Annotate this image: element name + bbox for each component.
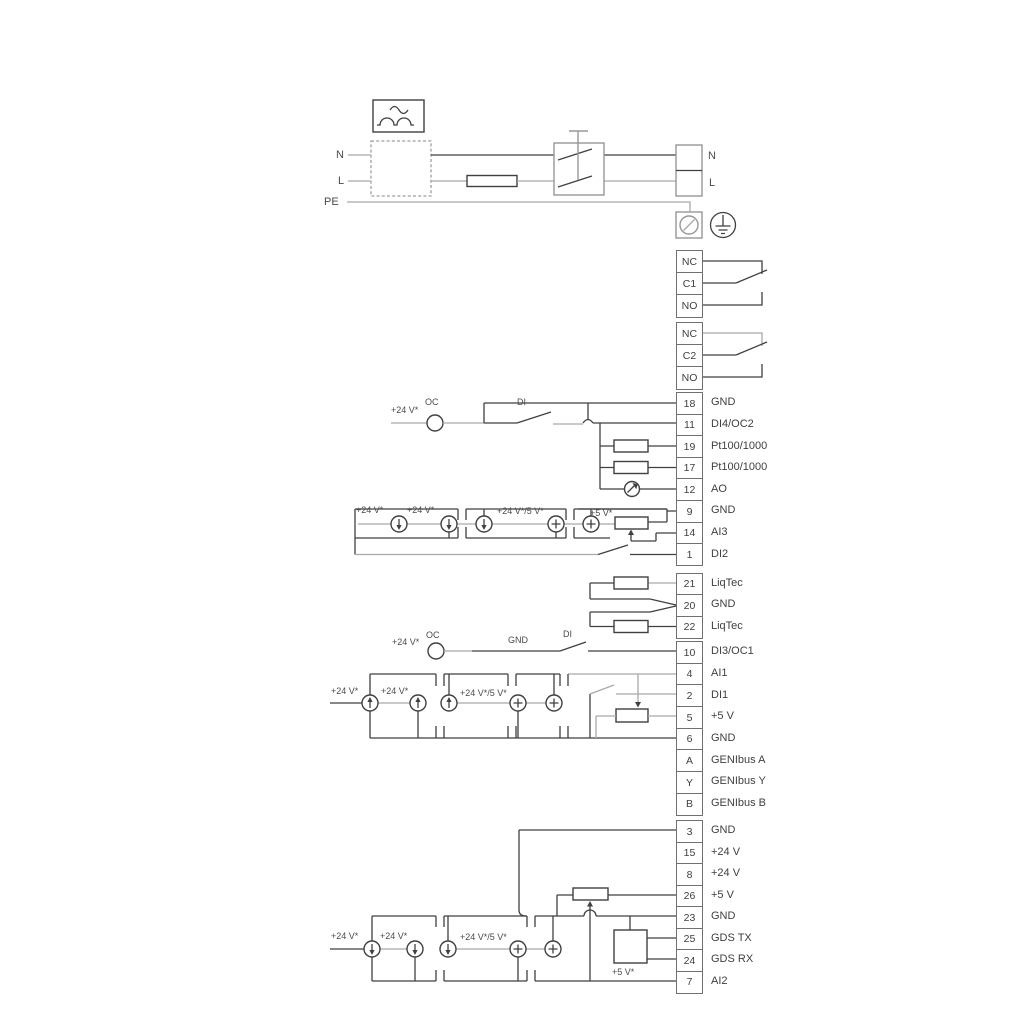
terminal-cell-B: B xyxy=(676,793,703,816)
terminal-cell-18: 18 xyxy=(676,392,703,415)
terminal-cell-9: 9 xyxy=(676,500,703,523)
terminal-cell-17: 17 xyxy=(676,457,703,480)
resistor-icon xyxy=(614,462,648,474)
terminal-cell-5: 5 xyxy=(676,706,703,729)
wiring-diagram: N L PE N L NCC1NONCC2NO18GND11DI4/OC219P… xyxy=(0,0,1024,1024)
wire-label: +5 V* xyxy=(612,967,634,977)
terminal-label-23: GND xyxy=(711,910,735,922)
terminal-cell-4: 4 xyxy=(676,663,703,686)
terminal-label-20: GND xyxy=(711,598,735,610)
terminal-label-3: GND xyxy=(711,824,735,836)
terminal-cell-1: 1 xyxy=(676,543,703,566)
current-source-up-icon xyxy=(410,695,426,711)
di1-switch-blade xyxy=(590,685,614,694)
liqtec-section xyxy=(590,577,676,633)
di3-oc1-section xyxy=(428,642,676,659)
voltage-source-icon xyxy=(546,695,562,711)
wiper-arrow-icon xyxy=(635,702,641,708)
terminal-cell-12: 12 xyxy=(676,478,703,501)
wire-label: +24 V* xyxy=(407,505,434,515)
current-source-down-icon xyxy=(476,516,492,532)
wire-label: +24 V*/5 V* xyxy=(497,506,544,516)
potentiometer-icon xyxy=(616,709,648,722)
port-label-n-right: N xyxy=(708,150,716,162)
terminal-label-9: GND xyxy=(711,504,735,516)
relay-2-blade xyxy=(736,342,767,355)
current-source-up-icon xyxy=(441,695,457,711)
voltage-source-icon xyxy=(510,695,526,711)
potentiometer-icon xyxy=(573,888,608,900)
terminal-cell-19: 19 xyxy=(676,435,703,458)
port-label-pe: PE xyxy=(324,196,339,208)
terminal-label-25: GDS TX xyxy=(711,932,752,944)
terminal-cell-21: 21 xyxy=(676,573,703,596)
terminal-label-7: AI2 xyxy=(711,975,728,987)
wire-label: OC xyxy=(425,397,439,407)
wire-label: DI xyxy=(563,629,572,639)
wire-label: +24 V*/5 V* xyxy=(460,688,507,698)
wire-hop xyxy=(583,420,593,424)
terminal-label-19: Pt100/1000 xyxy=(711,440,767,452)
rectifier-box-icon xyxy=(373,100,424,132)
main-switch-box xyxy=(554,143,604,195)
relay-cell-NC: NC xyxy=(676,322,703,346)
terminal-cell-15: 15 xyxy=(676,842,703,865)
di2-switch-blade xyxy=(598,545,628,555)
terminal-cell-A: A xyxy=(676,749,703,772)
di3-switch-blade xyxy=(560,642,586,651)
supply-dashed-box xyxy=(371,141,431,196)
terminal-label-5: +5 V xyxy=(711,710,734,722)
terminal-cell-25: 25 xyxy=(676,928,703,951)
wire-label: GND xyxy=(508,635,528,645)
ai1-di1-section xyxy=(330,674,676,738)
relay-cell-NC: NC xyxy=(676,250,703,274)
relay-cell-NO: NO xyxy=(676,366,703,390)
wire-label: OC xyxy=(426,630,440,640)
port-label-l-right: L xyxy=(709,177,715,189)
analog-output-meter-icon xyxy=(625,482,640,497)
terminal-cell-22: 22 xyxy=(676,616,703,639)
relay-1-blade xyxy=(736,270,767,283)
terminal-cell-23: 23 xyxy=(676,906,703,929)
terminal-cell-11: 11 xyxy=(676,414,703,437)
current-source-up-icon xyxy=(362,695,378,711)
current-source-down-icon xyxy=(391,516,407,532)
terminal-cell-7: 7 xyxy=(676,971,703,994)
wiper-arrow-icon xyxy=(628,530,634,536)
terminal-cell-14: 14 xyxy=(676,522,703,545)
current-source-down-icon xyxy=(440,941,456,957)
power-section xyxy=(347,100,736,238)
terminal-cell-Y: Y xyxy=(676,771,703,794)
terminal-label-8: +24 V xyxy=(711,867,740,879)
terminal-label-15: +24 V xyxy=(711,846,740,858)
open-collector-icon xyxy=(428,643,444,659)
terminal-label-A: GENIbus A xyxy=(711,754,765,766)
terminal-cell-6: 6 xyxy=(676,728,703,751)
port-label-l-left: L xyxy=(338,175,344,187)
terminal-label-10: DI3/OC1 xyxy=(711,645,754,657)
terminal-cell-2: 2 xyxy=(676,684,703,707)
port-label-n-left: N xyxy=(336,149,344,161)
relay-cell-C1: C1 xyxy=(676,272,703,296)
voltage-source-icon xyxy=(510,941,526,957)
terminal-label-18: GND xyxy=(711,396,735,408)
terminal-cell-20: 20 xyxy=(676,594,703,617)
open-collector-icon xyxy=(427,415,443,431)
wire-label: +24 V* xyxy=(331,686,358,696)
terminal-label-12: AO xyxy=(711,483,727,495)
terminal-label-2: DI1 xyxy=(711,689,728,701)
terminal-label-11: DI4/OC2 xyxy=(711,418,754,430)
relay-cell-NO: NO xyxy=(676,294,703,318)
terminal-label-22: LiqTec xyxy=(711,620,743,632)
terminal-label-17: Pt100/1000 xyxy=(711,461,767,473)
terminal-label-1: DI2 xyxy=(711,548,728,560)
terminal-label-14: AI3 xyxy=(711,526,728,538)
resistor-icon xyxy=(614,621,648,633)
voltage-source-icon xyxy=(545,941,561,957)
current-source-down-icon xyxy=(364,941,380,957)
wire-label: DI xyxy=(517,397,526,407)
wire-label: +24 V* xyxy=(380,931,407,941)
di4-oc2-section xyxy=(391,403,676,497)
di4-switch-blade xyxy=(484,412,551,423)
terminal-label-24: GDS RX xyxy=(711,953,753,965)
wiper-arrow-icon xyxy=(587,901,593,907)
current-source-down-icon xyxy=(407,941,423,957)
wire-label: +24 V* xyxy=(391,405,418,415)
wire-label: +24 V*/5 V* xyxy=(460,932,507,942)
potentiometer-icon xyxy=(615,517,648,529)
wire-label: +5 V* xyxy=(590,508,612,518)
bottom-io-section xyxy=(330,830,676,981)
wire-label: +24 V* xyxy=(392,637,419,647)
wire-label: +24 V* xyxy=(331,931,358,941)
terminal-cell-8: 8 xyxy=(676,863,703,886)
relay-cell-C2: C2 xyxy=(676,344,703,368)
terminal-label-26: +5 V xyxy=(711,889,734,901)
current-source-down-icon xyxy=(441,516,457,532)
terminal-label-Y: GENIbus Y xyxy=(711,775,766,787)
voltage-source-icon xyxy=(583,516,599,532)
terminal-label-6: GND xyxy=(711,732,735,744)
terminal-label-B: GENIbus B xyxy=(711,797,766,809)
relay-1-wires xyxy=(703,261,767,305)
gds-module-box xyxy=(614,930,647,963)
terminal-cell-24: 24 xyxy=(676,949,703,972)
resistor-icon xyxy=(614,577,648,589)
resistor-icon xyxy=(614,440,648,452)
terminal-label-4: AI1 xyxy=(711,667,728,679)
terminal-cell-3: 3 xyxy=(676,820,703,843)
wire-label: +24 V* xyxy=(356,505,383,515)
terminal-cell-10: 10 xyxy=(676,641,703,664)
relay-2-wires xyxy=(703,333,767,377)
terminal-cell-26: 26 xyxy=(676,885,703,908)
wire-label: +24 V* xyxy=(381,686,408,696)
terminal-label-21: LiqTec xyxy=(711,577,743,589)
voltage-source-icon xyxy=(548,516,564,532)
fuse-icon xyxy=(467,176,517,187)
